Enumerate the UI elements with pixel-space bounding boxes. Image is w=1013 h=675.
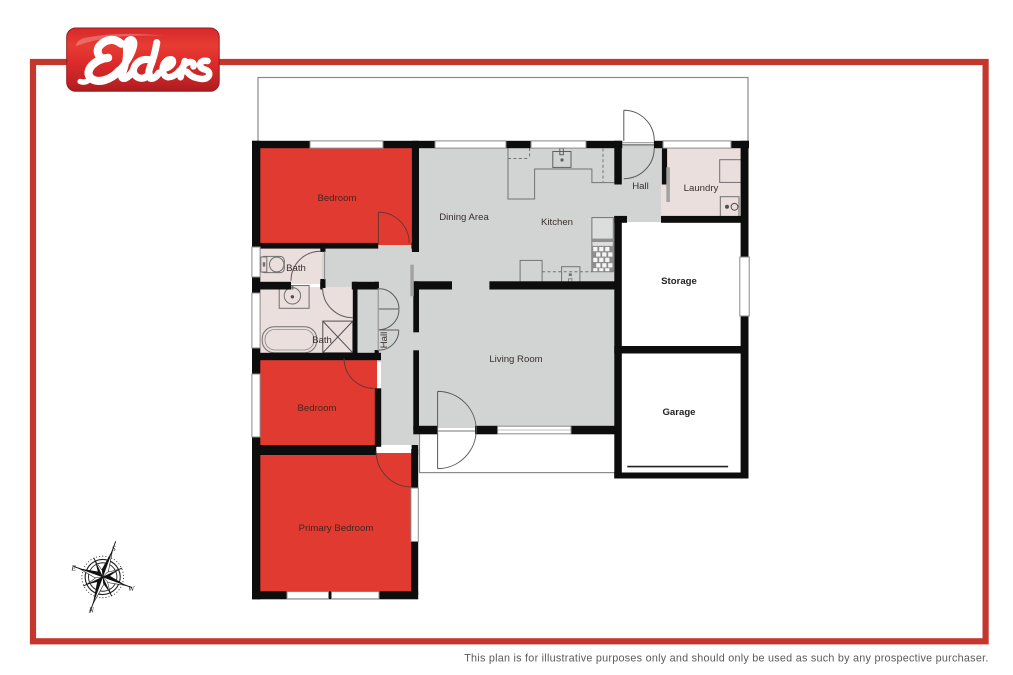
- svg-text:Hall: Hall: [379, 332, 390, 349]
- svg-text:Bedroom: Bedroom: [318, 193, 357, 204]
- svg-text:Kitchen: Kitchen: [541, 217, 573, 228]
- svg-text:Bath: Bath: [286, 263, 306, 274]
- svg-text:Primary Bedroom: Primary Bedroom: [299, 523, 374, 534]
- svg-text:W: W: [128, 584, 135, 593]
- svg-text:Dining Area: Dining Area: [439, 212, 489, 223]
- svg-text:Living Room: Living Room: [489, 354, 542, 365]
- svg-text:Storage: Storage: [661, 276, 697, 287]
- svg-text:S: S: [112, 544, 116, 553]
- svg-text:Bath: Bath: [312, 335, 332, 346]
- svg-text:This plan is for illustrative: This plan is for illustrative purposes o…: [464, 653, 988, 665]
- svg-text:N: N: [88, 606, 95, 615]
- svg-text:Garage: Garage: [662, 407, 695, 418]
- svg-text:E: E: [70, 564, 76, 573]
- svg-text:Bedroom: Bedroom: [298, 403, 337, 414]
- svg-text:Hall: Hall: [632, 181, 649, 192]
- svg-text:Laundry: Laundry: [684, 183, 719, 194]
